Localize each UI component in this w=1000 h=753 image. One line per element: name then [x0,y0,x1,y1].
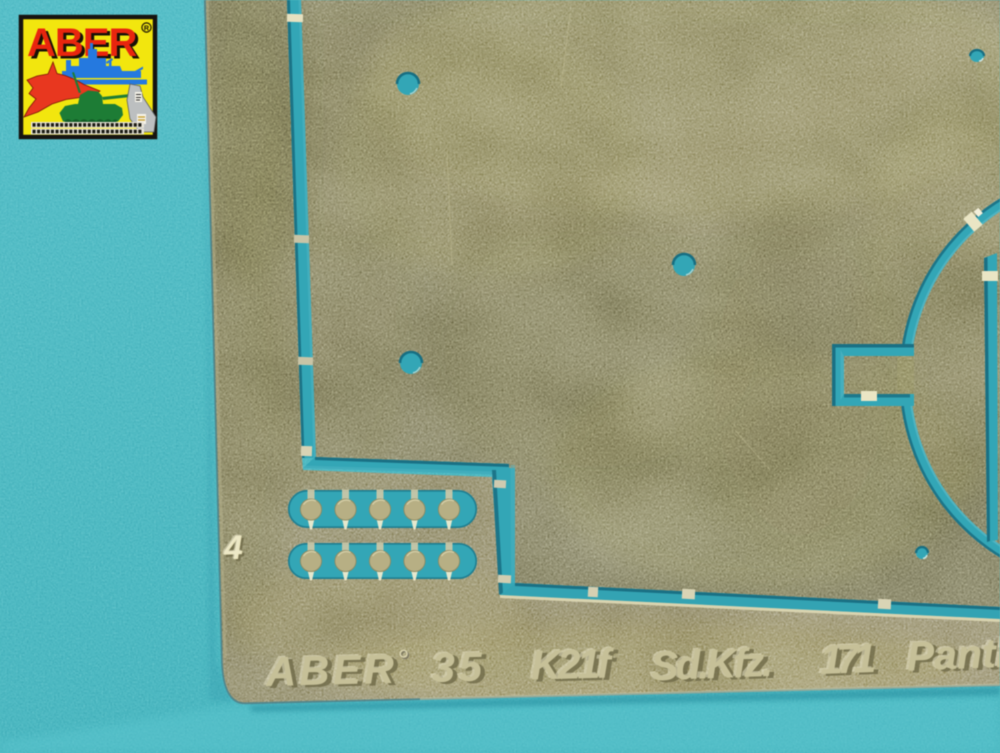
svg-text:4: 4 [221,528,242,567]
svg-text:R: R [144,24,150,33]
svg-text:ABER35K21f: ABER35K21f [264,639,615,695]
